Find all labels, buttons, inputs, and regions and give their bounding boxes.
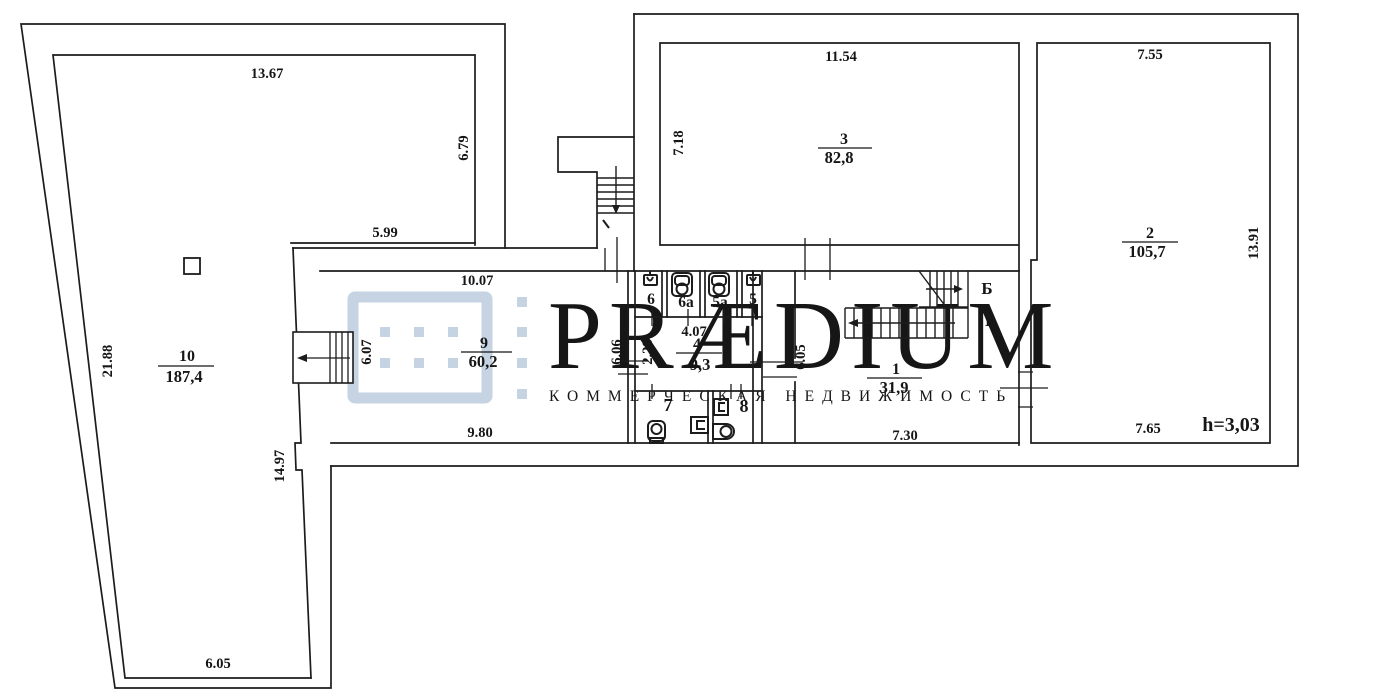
- dim-6-05-corridor: 6.05: [793, 344, 809, 369]
- dim-7-30: 7.30: [892, 428, 917, 444]
- dim-13-67: 13.67: [251, 66, 284, 82]
- room-10-inner-wall: [53, 55, 475, 678]
- column-symbol: [184, 258, 200, 274]
- room-1-area: 31,9: [880, 378, 909, 397]
- watermark-brand: PRÆDIUM: [548, 282, 1061, 389]
- room-6a-number: 6a: [678, 294, 694, 311]
- dim-7-65: 7.65: [1135, 421, 1160, 437]
- dim-9-80: 9.80: [467, 425, 492, 441]
- room-3-number: 3: [840, 131, 848, 148]
- room-9-number: 9: [480, 335, 488, 352]
- dim-14-97: 14.97: [272, 450, 288, 483]
- room-4-number: 4: [693, 336, 701, 353]
- room-9-area: 60,2: [469, 352, 498, 371]
- room-2-area: 105,7: [1128, 242, 1165, 261]
- dim-7-18: 7.18: [671, 130, 687, 155]
- sink-icon: [691, 417, 708, 433]
- door-leaf-mark: [603, 220, 609, 228]
- room-8-number: 8: [740, 396, 749, 416]
- room-10-area: 187,4: [165, 367, 202, 386]
- dim-11-54: 11.54: [825, 49, 857, 65]
- room-6-number: 6: [647, 291, 655, 308]
- dim-6-79: 6.79: [456, 135, 472, 160]
- toilet-icon: [713, 424, 734, 439]
- floor-plan-svg: PRÆDIUM КОММЕРЧЕСКАЯ НЕДВИЖИМОСТЬ: [0, 0, 1388, 699]
- room-3-area: 82,8: [825, 148, 854, 167]
- room-10-outer-wall: [21, 24, 505, 688]
- room-7-number: 7: [664, 395, 673, 415]
- floor-plan-page: PRÆDIUM КОММЕРЧЕСКАЯ НЕДВИЖИМОСТЬ: [0, 0, 1388, 699]
- opening-stair-corridor: [605, 237, 617, 283]
- dim-5-99: 5.99: [372, 225, 397, 241]
- dim-6-06: 6.06: [609, 339, 625, 364]
- room-10-number: 10: [179, 348, 195, 365]
- room-4-area: 9,3: [690, 355, 711, 374]
- stair-label-b: Б: [981, 279, 992, 298]
- stair-label-i: I: [985, 311, 992, 330]
- stairs-top: [597, 166, 634, 228]
- dim-13-91: 13.91: [1246, 227, 1262, 260]
- watermark-tagline: КОММЕРЧЕСКАЯ НЕДВИЖИМОСТЬ: [549, 388, 1013, 405]
- toilet-icon: [648, 421, 665, 443]
- room-10-leg-right-wall: [293, 248, 311, 678]
- dim-6-05-bottom: 6.05: [205, 656, 230, 672]
- dim-21-88: 21.88: [100, 345, 116, 378]
- dim-2-28: 2.28: [640, 339, 656, 364]
- entry-steps: [293, 332, 353, 383]
- room-5-number: 5: [749, 291, 757, 308]
- room-2-number: 2: [1146, 225, 1154, 242]
- room-1-number: 1: [892, 361, 900, 378]
- dim-10-07: 10.07: [461, 273, 494, 289]
- dim-6-07: 6.07: [359, 339, 375, 364]
- dim-7-55: 7.55: [1137, 47, 1162, 63]
- watermark-logo: [353, 297, 527, 399]
- ceiling-height-label: h=3,03: [1202, 414, 1260, 436]
- room-5a-number: 5a: [712, 294, 728, 311]
